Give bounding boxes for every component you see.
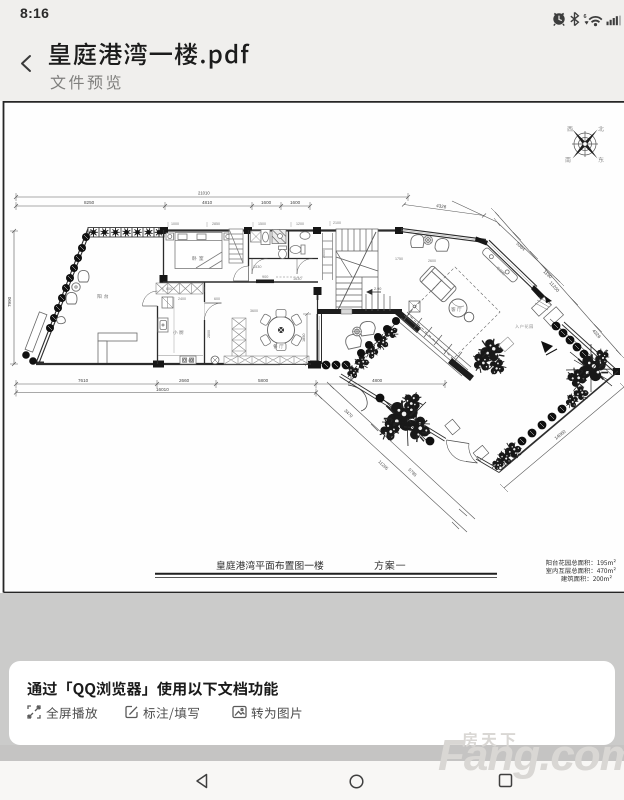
svg-text:2600: 2600	[322, 250, 326, 258]
svg-text:600: 600	[166, 287, 172, 291]
svg-text:900: 900	[188, 359, 194, 363]
svg-text:8250: 8250	[84, 200, 95, 205]
svg-text:1530: 1530	[253, 265, 261, 269]
svg-text:1000: 1000	[171, 222, 179, 226]
svg-text:3470: 3470	[343, 408, 354, 419]
svg-text:4326: 4326	[591, 328, 602, 339]
svg-text:2850: 2850	[212, 222, 220, 226]
svg-text:7610: 7610	[78, 378, 89, 383]
svg-text:1600: 1600	[261, 200, 272, 205]
svg-text:2100: 2100	[333, 221, 341, 225]
svg-text:1500: 1500	[258, 222, 266, 226]
svg-text:6: 6	[584, 14, 587, 20]
svg-text:2600: 2600	[428, 259, 436, 263]
svg-text:600: 600	[214, 297, 220, 301]
svg-text:1850: 1850	[302, 334, 306, 342]
svg-text:21010: 21010	[198, 191, 210, 196]
svg-text:4326: 4326	[436, 203, 447, 209]
svg-text:4810: 4810	[202, 200, 213, 205]
svg-text:900: 900	[262, 275, 268, 279]
svg-text:14060: 14060	[554, 429, 567, 441]
svg-text:1750: 1750	[395, 257, 403, 261]
svg-text:4800: 4800	[372, 378, 383, 383]
svg-text:1190: 1190	[542, 269, 553, 280]
svg-text:1200: 1200	[296, 222, 304, 226]
svg-text:5800: 5800	[258, 378, 269, 383]
svg-text:5795: 5795	[407, 467, 418, 478]
svg-text:11200: 11200	[548, 280, 560, 293]
svg-text:16010: 16010	[156, 387, 169, 392]
svg-text:3600: 3600	[250, 309, 258, 313]
svg-text:11265: 11265	[377, 459, 389, 471]
svg-text:5384: 5384	[515, 241, 526, 252]
svg-text:2.90: 2.90	[374, 287, 381, 291]
svg-text:2800: 2800	[207, 330, 211, 338]
svg-text:1630: 1630	[293, 277, 301, 281]
svg-text:2400: 2400	[178, 297, 186, 301]
svg-text:2660: 2660	[179, 378, 190, 383]
svg-text:7990: 7990	[7, 296, 12, 307]
svg-text:1600: 1600	[290, 200, 301, 205]
